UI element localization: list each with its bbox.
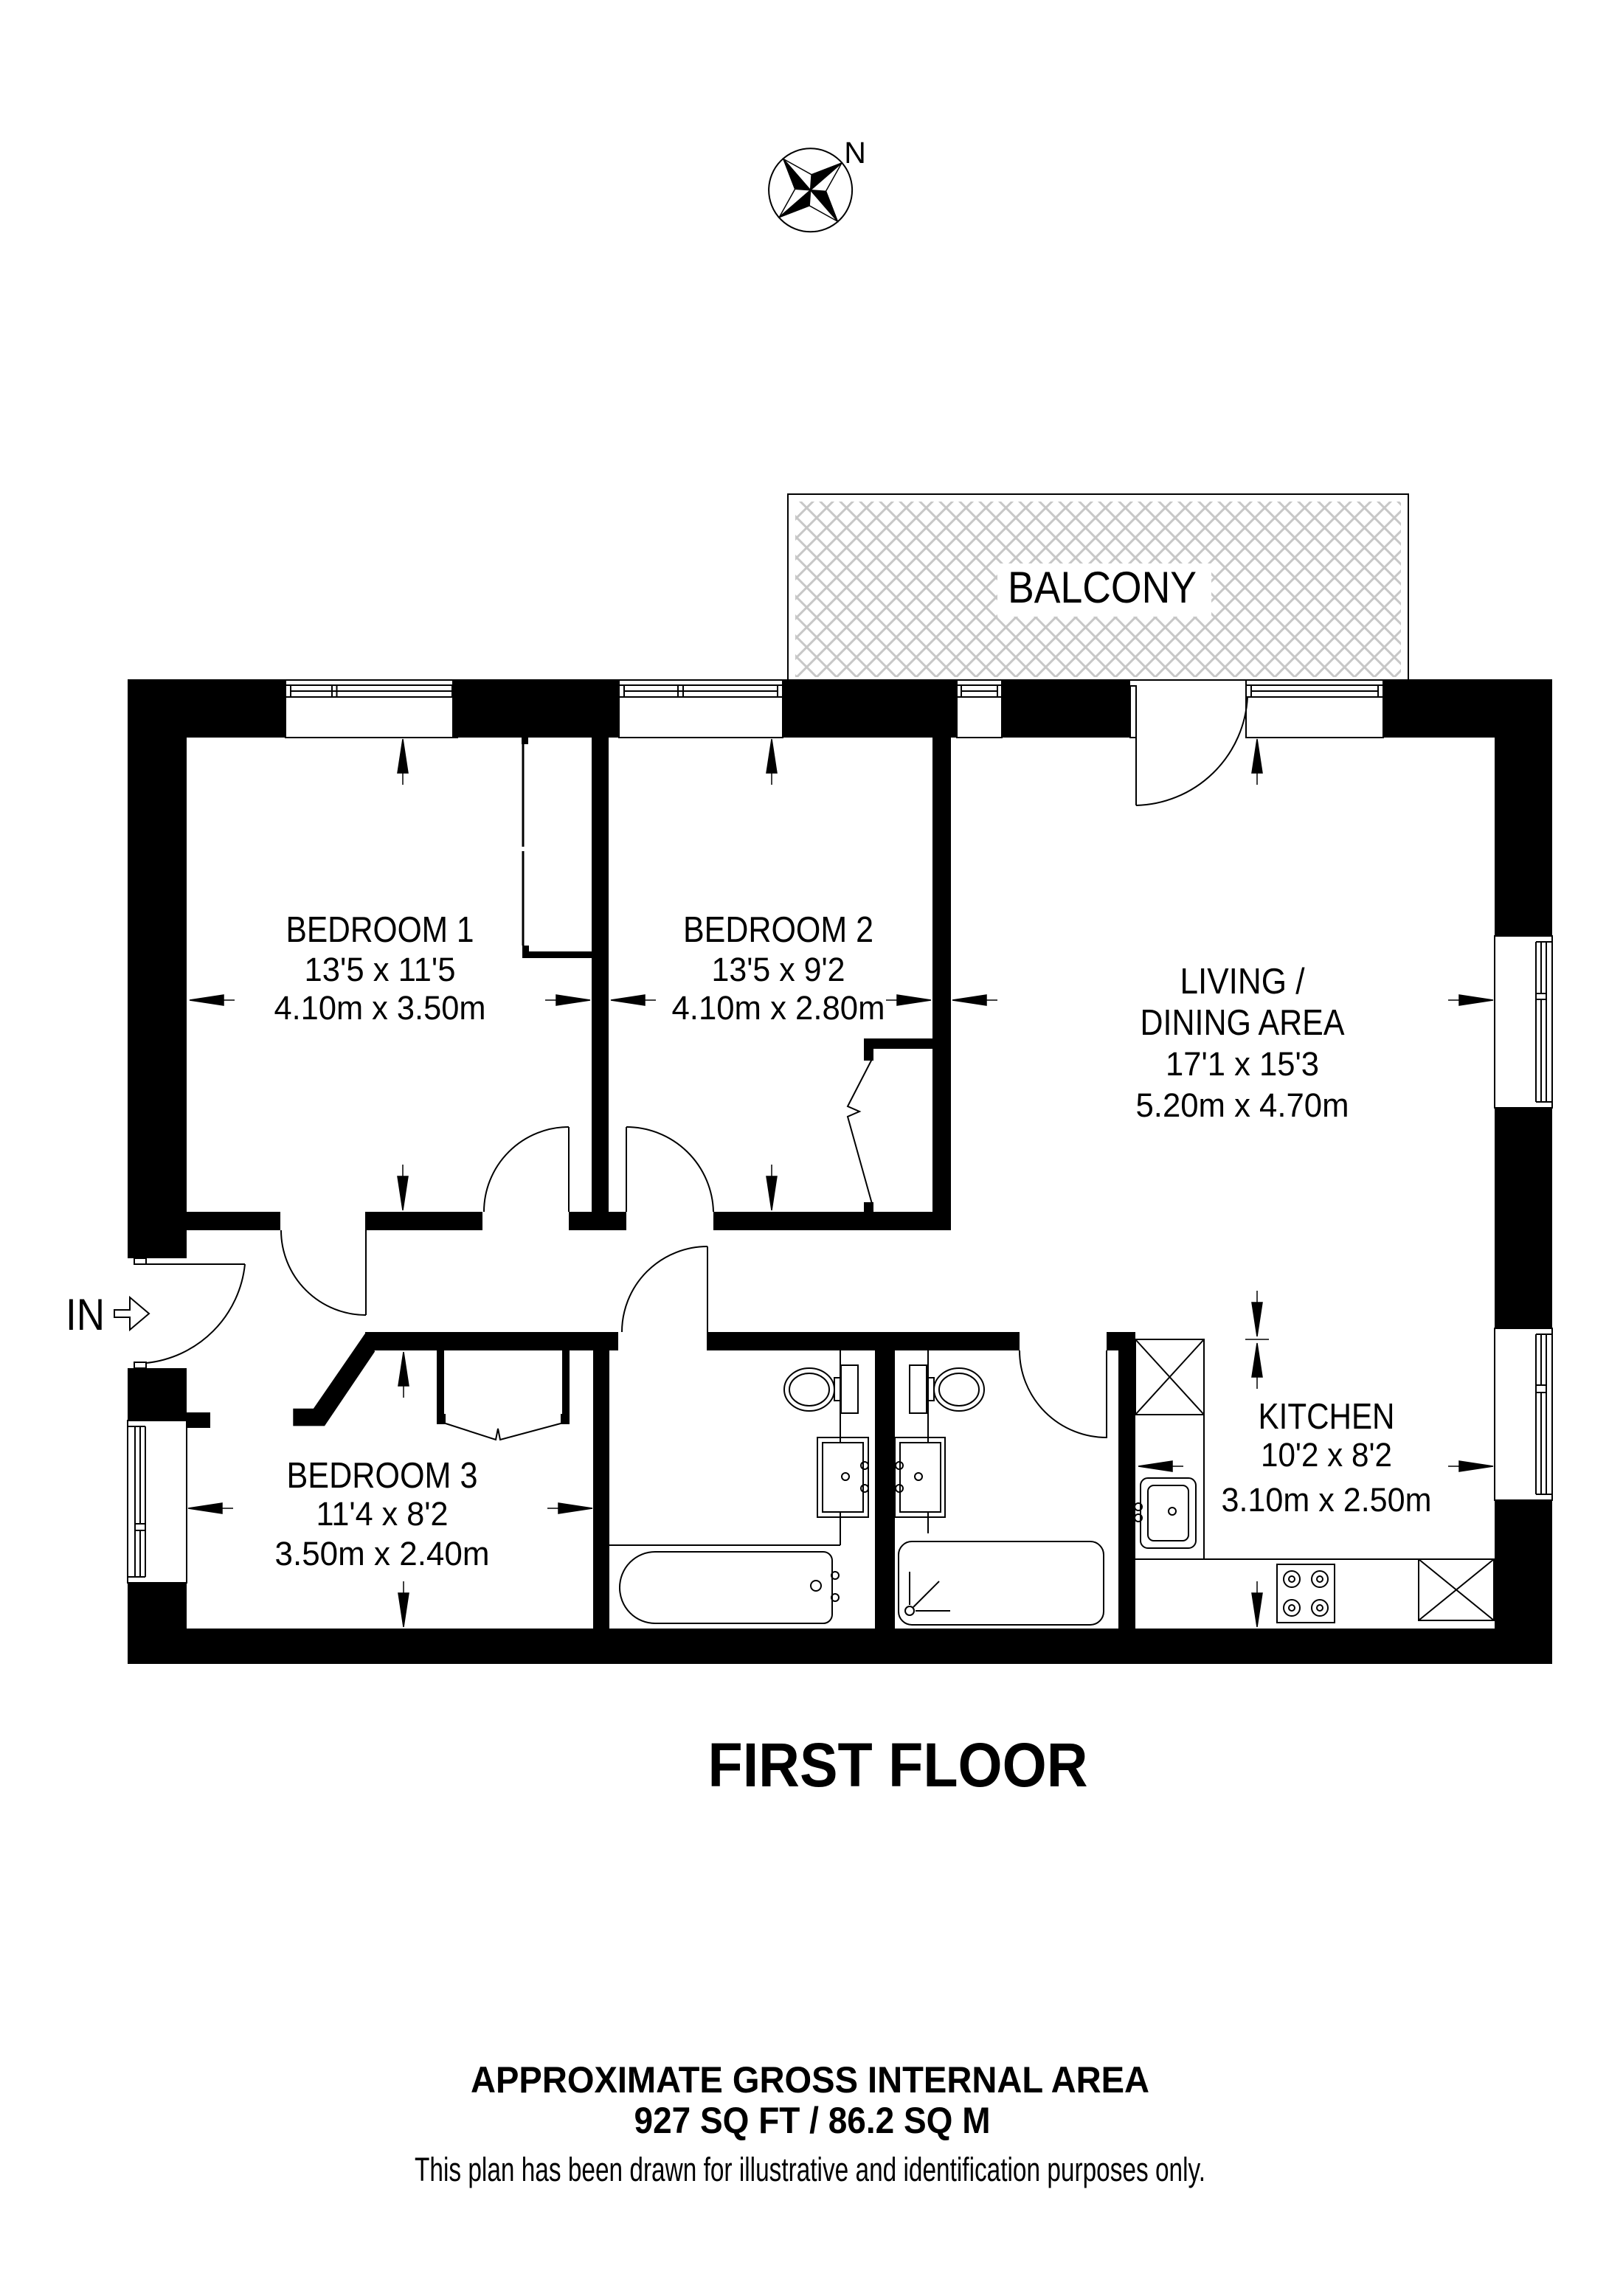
svg-text:N: N: [844, 136, 866, 170]
svg-text:IN: IN: [66, 1290, 105, 1339]
svg-text:3.50m x 2.40m: 3.50m x 2.40m: [275, 1535, 490, 1572]
svg-text:17'1 x 15'3: 17'1 x 15'3: [1166, 1045, 1319, 1083]
svg-text:5.20m x 4.70m: 5.20m x 4.70m: [1136, 1086, 1349, 1124]
svg-text:FIRST FLOOR: FIRST FLOOR: [708, 1730, 1088, 1800]
svg-text:927 SQ FT / 86.2 SQ M: 927 SQ FT / 86.2 SQ M: [634, 2100, 991, 2141]
svg-text:3.10m x 2.50m: 3.10m x 2.50m: [1222, 1481, 1432, 1519]
svg-text:4.10m x 2.80m: 4.10m x 2.80m: [672, 989, 885, 1027]
svg-text:4.10m x 3.50m: 4.10m x 3.50m: [274, 989, 486, 1027]
svg-text:BEDROOM 2: BEDROOM 2: [683, 910, 873, 950]
svg-text:DINING AREA: DINING AREA: [1141, 1003, 1345, 1043]
svg-text:11'4 x 8'2: 11'4 x 8'2: [316, 1495, 449, 1533]
svg-text:BALCONY: BALCONY: [1008, 563, 1197, 612]
svg-text:10'2 x 8'2: 10'2 x 8'2: [1261, 1436, 1392, 1474]
svg-text:KITCHEN: KITCHEN: [1259, 1397, 1395, 1437]
svg-text:13'5 x 11'5: 13'5 x 11'5: [305, 951, 456, 988]
svg-text:This plan has been drawn for i: This plan has been drawn for illustrativ…: [415, 2151, 1205, 2188]
svg-text:LIVING /: LIVING /: [1180, 962, 1305, 1002]
svg-text:APPROXIMATE GROSS INTERNAL ARE: APPROXIMATE GROSS INTERNAL AREA: [471, 2059, 1149, 2101]
svg-text:BEDROOM 3: BEDROOM 3: [287, 1456, 478, 1496]
svg-text:13'5 x 9'2: 13'5 x 9'2: [712, 951, 845, 988]
svg-text:BEDROOM 1: BEDROOM 1: [286, 910, 474, 950]
